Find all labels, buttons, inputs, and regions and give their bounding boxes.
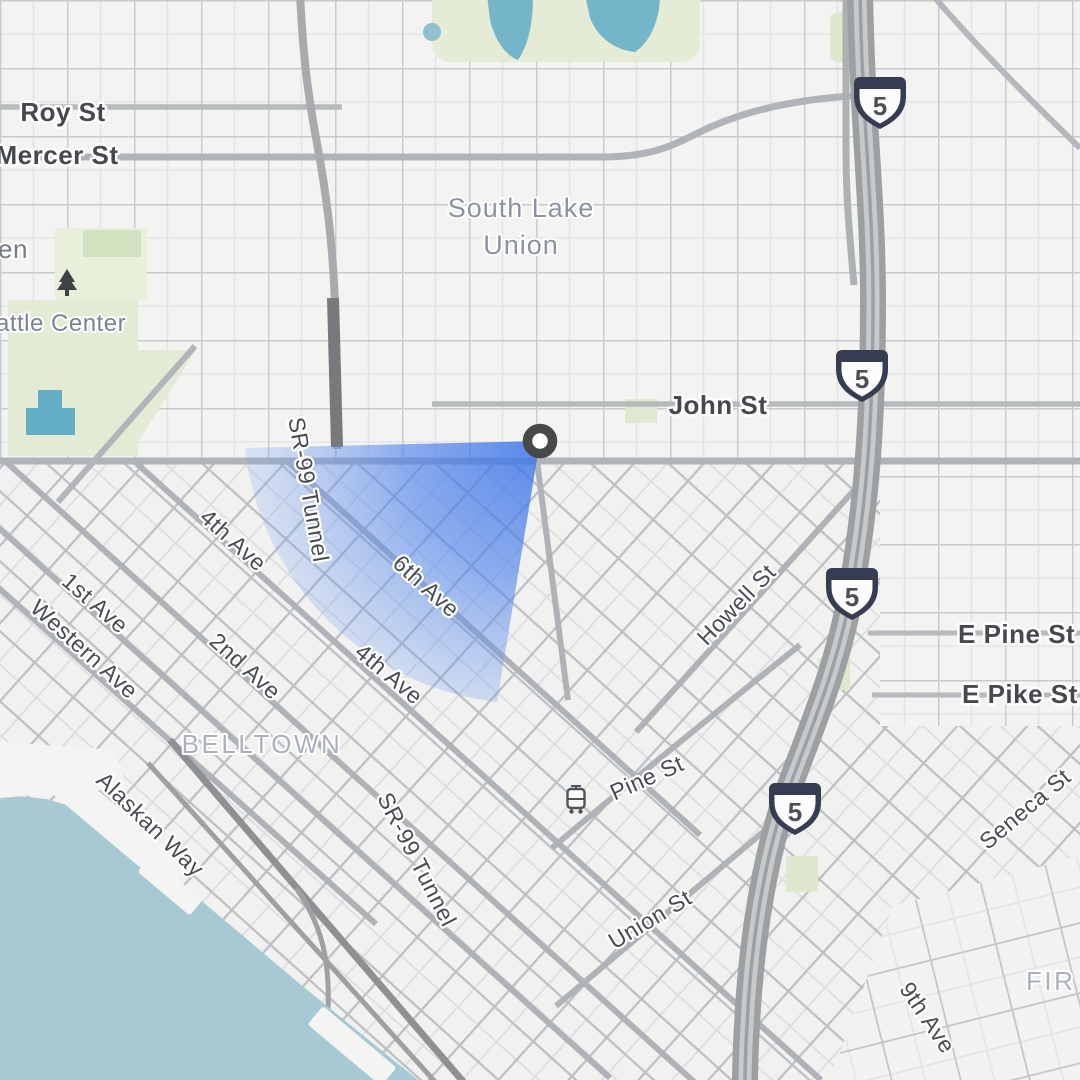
map-view[interactable]: 5 5 5 5 Roy St Mercer St John St E Pine … [0, 0, 1080, 1080]
shield-route-number: 5 [788, 797, 802, 827]
map-canvas[interactable]: 5 5 5 5 Roy St Mercer St John St E Pine … [0, 0, 1080, 1080]
street-label-e-pine-st: E Pine St [958, 619, 1075, 649]
street-label-mercer-st: Mercer St [0, 140, 119, 170]
shield-route-number: 5 [855, 364, 869, 394]
poi-label-garden: en [0, 234, 28, 264]
location-marker[interactable] [528, 429, 553, 454]
street-label-roy-st: Roy St [20, 97, 105, 127]
street-label-e-pike-st: E Pike St [962, 679, 1078, 709]
poi-label-seattle-center: attle Center [0, 310, 126, 337]
neighborhood-label-first-hill: FIR [1026, 966, 1075, 996]
street-label-john-st: John St [669, 390, 768, 420]
neighborhood-label-belltown: BELLTOWN [182, 729, 343, 759]
neighborhood-label-south-lake-line1: South Lake [448, 193, 595, 223]
neighborhood-label-south-lake-line2: Union [483, 230, 559, 260]
shield-route-number: 5 [873, 91, 887, 121]
shield-route-number: 5 [845, 582, 859, 612]
